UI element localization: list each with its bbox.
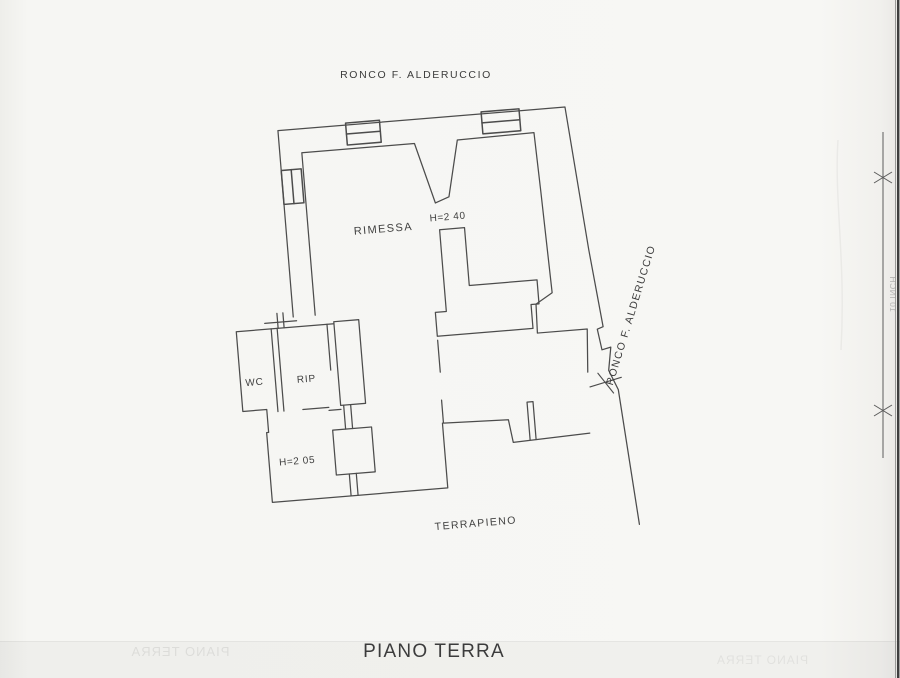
outer-wall-path xyxy=(278,104,639,551)
ghost-text-right: PIANO TERRA xyxy=(716,653,808,667)
door-leaf-line xyxy=(303,406,341,412)
side-marker-text: 10 INCH xyxy=(888,276,898,312)
inner-wall-path xyxy=(302,130,591,394)
paper-edge-lines xyxy=(896,0,899,678)
street-label-top: RONCO F. ALDERUCCIO xyxy=(340,69,492,81)
rip-right-wall xyxy=(327,324,331,370)
window-symbols xyxy=(278,109,525,205)
square-pillar xyxy=(333,427,376,475)
street-label-right: RONCO F. ALDERUCCIO xyxy=(604,244,658,387)
height-note-lower: H=2 05 xyxy=(279,455,316,469)
room-label-rimessa: RIMESSA xyxy=(353,221,413,238)
annex-top-double-line xyxy=(265,321,297,324)
annex-outline-path xyxy=(236,316,448,505)
window-top-2-sill xyxy=(482,120,520,123)
window-top-1-sill xyxy=(346,131,380,134)
scratch-mark xyxy=(837,140,842,350)
sheet-title: PIANO TERRA xyxy=(363,641,505,662)
floorplan-drawing: RIMESSA H=2 40 WC RIP H=2 05 TERRAPIENO xyxy=(220,102,639,556)
room-label-wc: WC xyxy=(245,377,264,389)
bottom-wall-path xyxy=(437,328,590,448)
floorplan-canvas: RIMESSA H=2 40 WC RIP H=2 05 TERRAPIENO … xyxy=(0,0,900,678)
room-label-rip: RIP xyxy=(296,373,316,386)
shaft-rect xyxy=(334,320,366,406)
ghost-text-left: PIANO TERRA xyxy=(131,644,230,659)
pillar-link-walls xyxy=(344,405,358,496)
terrain-label: TERRAPIENO xyxy=(434,514,517,533)
door-jamb-stub xyxy=(527,402,536,440)
window-left-1-sill xyxy=(291,170,294,204)
l-pillar xyxy=(429,222,541,336)
scanned-floorplan-page: RIMESSA H=2 40 WC RIP H=2 05 TERRAPIENO … xyxy=(0,0,900,678)
height-note-main: H=2 40 xyxy=(429,211,466,225)
